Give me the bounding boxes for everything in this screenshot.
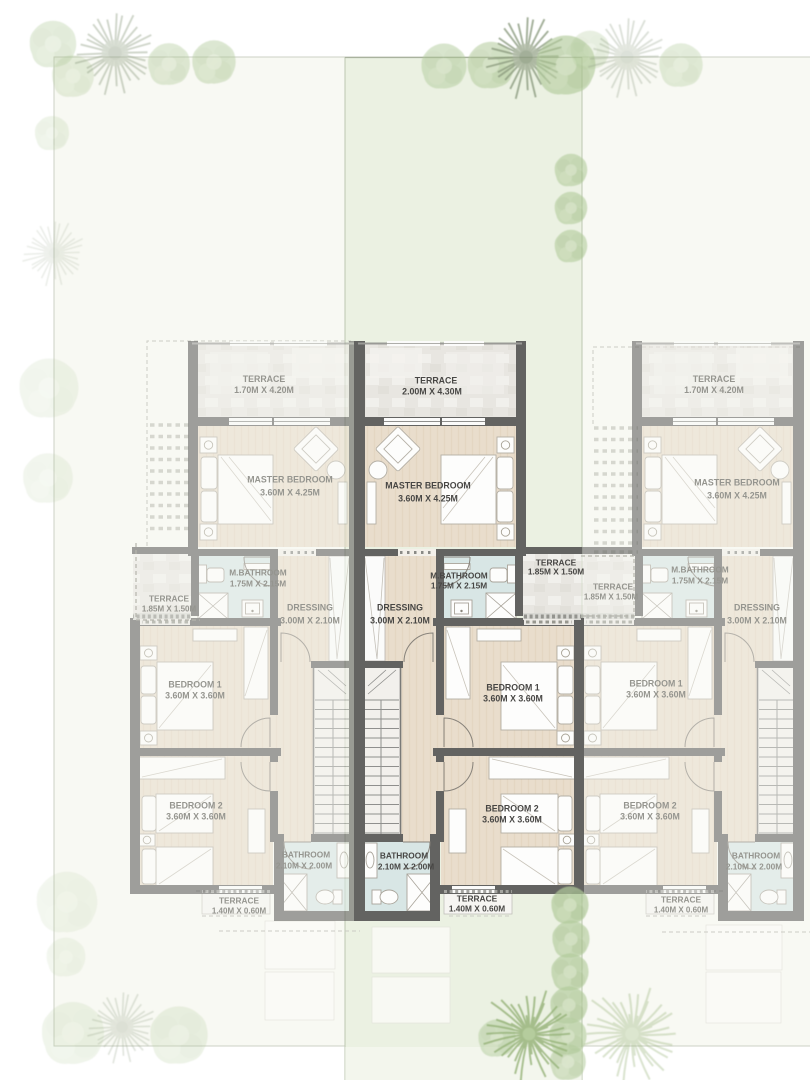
svg-text:MASTER BEDROOM: MASTER BEDROOM	[247, 475, 333, 485]
svg-text:2.10M X 2.00M: 2.10M X 2.00M	[276, 861, 332, 871]
svg-text:1.40M X 0.60M: 1.40M X 0.60M	[449, 904, 505, 914]
svg-text:TERRACE: TERRACE	[149, 594, 190, 604]
svg-text:BATHROOM: BATHROOM	[732, 851, 780, 861]
svg-text:3.60M X 4.25M: 3.60M X 4.25M	[260, 488, 320, 498]
svg-text:2.00M X 4.30M: 2.00M X 4.30M	[402, 387, 462, 397]
svg-text:2.10M X 2.00M: 2.10M X 2.00M	[726, 862, 782, 872]
svg-text:1.75M X 2.15M: 1.75M X 2.15M	[431, 581, 487, 591]
svg-text:3.60M X 3.60M: 3.60M X 3.60M	[483, 694, 543, 704]
svg-text:3.00M X 2.10M: 3.00M X 2.10M	[727, 616, 787, 626]
svg-text:BATHROOM: BATHROOM	[282, 850, 330, 860]
svg-text:2.10M X 2.00M: 2.10M X 2.00M	[378, 862, 434, 872]
svg-text:1.75M X 2.15M: 1.75M X 2.15M	[672, 576, 728, 586]
svg-text:DRESSING: DRESSING	[734, 603, 780, 613]
svg-text:TERRACE: TERRACE	[219, 896, 260, 906]
svg-text:DRESSING: DRESSING	[377, 603, 423, 613]
svg-text:3.60M X 3.60M: 3.60M X 3.60M	[165, 691, 225, 701]
svg-text:BEDROOM 1: BEDROOM 1	[168, 680, 221, 690]
svg-text:TERRACE: TERRACE	[693, 374, 736, 384]
svg-text:3.60M X 4.25M: 3.60M X 4.25M	[707, 491, 767, 501]
svg-text:M.BATHROOM: M.BATHROOM	[229, 568, 287, 578]
svg-text:1.40M X 0.60M: 1.40M X 0.60M	[654, 906, 709, 915]
svg-text:1.85M X 1.50M: 1.85M X 1.50M	[142, 605, 197, 614]
svg-text:BEDROOM 2: BEDROOM 2	[485, 804, 538, 814]
svg-text:BEDROOM 2: BEDROOM 2	[623, 801, 676, 811]
svg-text:TERRACE: TERRACE	[415, 376, 458, 386]
svg-text:1.75M X 2.15M: 1.75M X 2.15M	[230, 579, 286, 589]
svg-text:BEDROOM 1: BEDROOM 1	[486, 683, 539, 693]
svg-text:TERRACE: TERRACE	[243, 374, 286, 384]
svg-text:M.BATHROOM: M.BATHROOM	[430, 571, 488, 581]
svg-text:TERRACE: TERRACE	[593, 582, 634, 592]
svg-text:BEDROOM 1: BEDROOM 1	[629, 679, 682, 689]
svg-text:1.85M X 1.50M: 1.85M X 1.50M	[584, 593, 639, 602]
svg-text:3.60M X 3.60M: 3.60M X 3.60M	[166, 812, 226, 822]
svg-text:BEDROOM 2: BEDROOM 2	[169, 801, 222, 811]
svg-text:TERRACE: TERRACE	[457, 894, 498, 904]
svg-text:3.60M X 3.60M: 3.60M X 3.60M	[626, 690, 686, 700]
svg-text:1.85M X 1.50M: 1.85M X 1.50M	[528, 567, 584, 577]
svg-text:M.BATHROOM: M.BATHROOM	[671, 565, 729, 575]
svg-text:3.00M X 2.10M: 3.00M X 2.10M	[370, 616, 430, 626]
svg-text:3.60M X 4.25M: 3.60M X 4.25M	[398, 494, 458, 504]
svg-text:MASTER BEDROOM: MASTER BEDROOM	[694, 478, 780, 488]
svg-text:3.60M X 3.60M: 3.60M X 3.60M	[620, 812, 680, 822]
svg-text:1.70M X 4.20M: 1.70M X 4.20M	[684, 385, 744, 395]
svg-text:1.70M X 4.20M: 1.70M X 4.20M	[234, 385, 294, 395]
svg-text:MASTER BEDROOM: MASTER BEDROOM	[385, 481, 471, 491]
svg-text:3.60M X 3.60M: 3.60M X 3.60M	[482, 815, 542, 825]
svg-text:TERRACE: TERRACE	[661, 895, 702, 905]
svg-text:BATHROOM: BATHROOM	[380, 851, 428, 861]
svg-text:DRESSING: DRESSING	[287, 603, 333, 613]
svg-text:3.00M X 2.10M: 3.00M X 2.10M	[280, 616, 340, 626]
svg-text:1.40M X 0.60M: 1.40M X 0.60M	[212, 907, 267, 916]
